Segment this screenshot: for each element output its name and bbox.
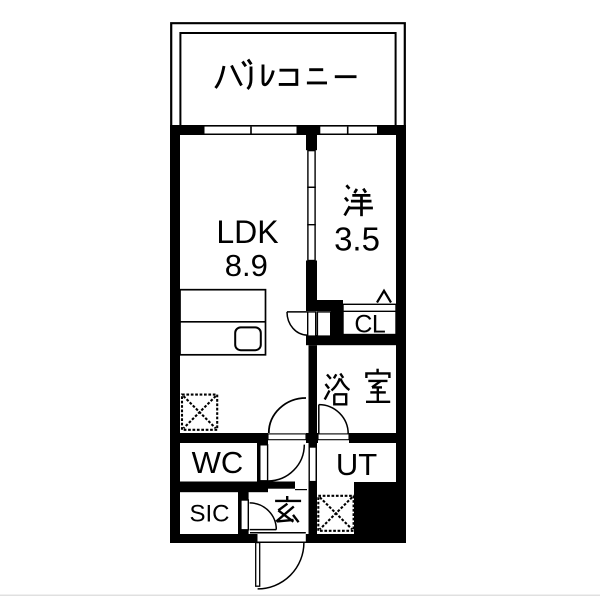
svg-text:CL: CL — [354, 310, 386, 338]
svg-text:SIC: SIC — [189, 501, 229, 528]
svg-text:UT: UT — [336, 447, 377, 482]
svg-text:3.5: 3.5 — [334, 221, 380, 258]
svg-text:8.9: 8.9 — [225, 248, 268, 283]
svg-text:LDK: LDK — [216, 214, 278, 250]
svg-text:WC: WC — [192, 445, 244, 480]
